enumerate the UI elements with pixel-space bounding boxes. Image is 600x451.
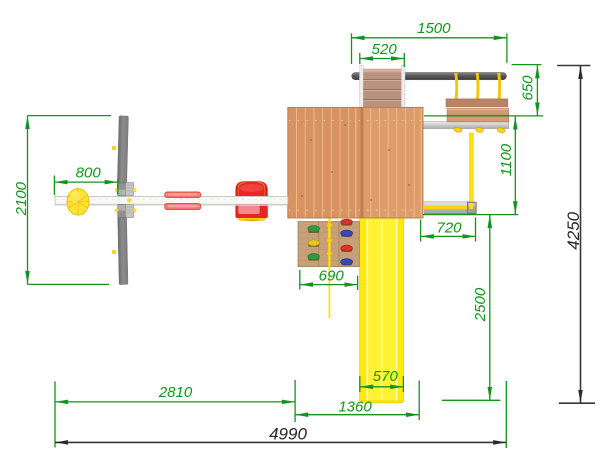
svg-text:4990: 4990 [269, 424, 307, 443]
svg-text:720: 720 [436, 220, 462, 237]
svg-text:570: 570 [373, 368, 399, 385]
svg-text:2500: 2500 [472, 287, 489, 322]
svg-text:800: 800 [76, 164, 102, 181]
svg-text:1500: 1500 [417, 20, 451, 37]
svg-text:520: 520 [372, 41, 398, 58]
svg-text:690: 690 [319, 267, 345, 284]
svg-text:2810: 2810 [158, 384, 193, 401]
svg-text:1100: 1100 [498, 143, 515, 176]
svg-text:650: 650 [520, 75, 537, 101]
svg-text:1360: 1360 [338, 399, 372, 416]
svg-text:4250: 4250 [564, 211, 583, 249]
svg-text:2100: 2100 [13, 181, 30, 216]
